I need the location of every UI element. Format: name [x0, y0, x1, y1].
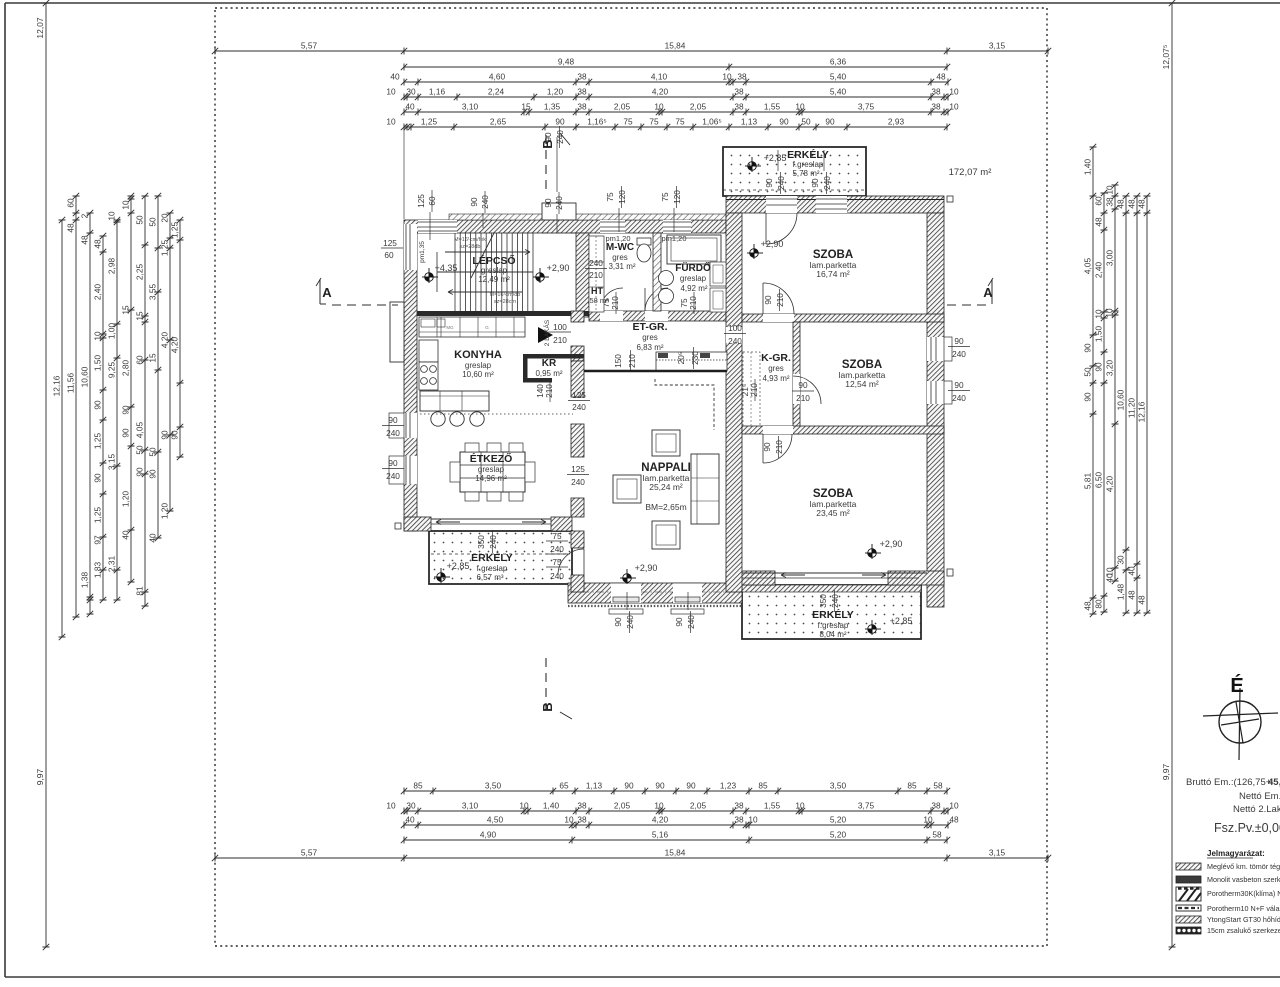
svg-text:30: 30 — [1116, 555, 1126, 565]
svg-text:90: 90 — [388, 415, 398, 425]
svg-text:Fsz.Pv.±0,00=1: Fsz.Pv.±0,00=1 — [1214, 821, 1280, 835]
svg-text:172,07 m²: 172,07 m² — [949, 167, 992, 178]
svg-text:48: 48 — [1127, 199, 1137, 209]
svg-text:50: 50 — [148, 217, 158, 227]
svg-text:75: 75 — [660, 192, 670, 202]
svg-text:3,20: 3,20 — [1105, 360, 1115, 377]
svg-text:48: 48 — [1137, 595, 1147, 605]
svg-text:40: 40 — [405, 102, 415, 112]
svg-text:15: 15 — [148, 353, 158, 363]
svg-text:1,83: 1,83 — [93, 562, 103, 579]
svg-text:10: 10 — [949, 87, 959, 97]
svg-text:240: 240 — [728, 336, 742, 346]
svg-text:15: 15 — [121, 305, 131, 315]
svg-text:90: 90 — [1083, 343, 1093, 353]
svg-text:40: 40 — [148, 533, 158, 543]
svg-text:10: 10 — [564, 815, 574, 825]
svg-text:38: 38 — [734, 87, 744, 97]
svg-text:pm1,20: pm1,20 — [661, 234, 686, 243]
svg-text:2,93: 2,93 — [888, 117, 905, 127]
svg-text:50: 50 — [135, 215, 145, 225]
svg-text:90: 90 — [810, 178, 820, 188]
svg-text:12,49 m²: 12,49 m² — [478, 275, 510, 284]
svg-text:Meglévő km. tömör tégla f: Meglévő km. tömör tégla f — [1207, 862, 1280, 871]
svg-text:38: 38 — [577, 815, 587, 825]
svg-text:1,13: 1,13 — [586, 781, 603, 791]
svg-text:10: 10 — [748, 815, 758, 825]
svg-text:Nettó 2.Lakás: Nettó 2.Lakás — [1233, 804, 1280, 815]
svg-text:1,06⁵: 1,06⁵ — [702, 117, 722, 127]
svg-text:5,81: 5,81 — [1083, 473, 1093, 490]
svg-text:75: 75 — [623, 117, 633, 127]
svg-text:4,20: 4,20 — [170, 337, 180, 354]
svg-text:240: 240 — [488, 535, 498, 549]
svg-text:f.greslap: f.greslap — [477, 564, 508, 573]
svg-text:10: 10 — [107, 211, 117, 221]
svg-text:10: 10 — [949, 801, 959, 811]
svg-text:ERKÉLY: ERKÉLY — [471, 551, 513, 564]
svg-text:G: G — [485, 325, 489, 330]
svg-text:B: B — [540, 702, 555, 711]
svg-text:2,05: 2,05 — [614, 102, 631, 112]
svg-text:125: 125 — [416, 194, 426, 208]
svg-text:20: 20 — [160, 213, 170, 223]
svg-text:10: 10 — [93, 331, 103, 341]
svg-text:A: A — [322, 285, 332, 300]
svg-text:90: 90 — [1094, 362, 1104, 372]
svg-text:210: 210 — [774, 440, 784, 454]
svg-text:90: 90 — [954, 380, 964, 390]
svg-text:1,55: 1,55 — [764, 801, 781, 811]
svg-text:1,40: 1,40 — [543, 801, 560, 811]
svg-text:1,25: 1,25 — [170, 222, 180, 239]
svg-text:90: 90 — [170, 430, 180, 440]
svg-text:4,20: 4,20 — [1105, 476, 1115, 493]
svg-text:Monolit vasbeton szerkez: Monolit vasbeton szerkez — [1207, 875, 1280, 884]
svg-text:90: 90 — [555, 117, 565, 127]
svg-text:10,60: 10,60 — [1116, 389, 1126, 410]
svg-text:100: 100 — [728, 323, 742, 333]
svg-text:240: 240 — [386, 471, 400, 481]
svg-text:23,45 m²: 23,45 m² — [816, 508, 850, 518]
svg-text:2,65: 2,65 — [490, 117, 507, 127]
svg-text:4,60: 4,60 — [489, 72, 506, 82]
svg-text:2,05: 2,05 — [614, 801, 631, 811]
svg-text:4,90: 4,90 — [480, 830, 497, 840]
svg-text:240: 240 — [822, 176, 832, 190]
svg-text:+2,90: +2,90 — [761, 239, 784, 249]
svg-text:9,25: 9,25 — [107, 362, 117, 379]
svg-text:48: 48 — [1127, 590, 1137, 600]
svg-text:48: 48 — [1083, 601, 1093, 611]
svg-text:48: 48 — [1137, 199, 1147, 209]
svg-text:+2,85: +2,85 — [764, 153, 787, 163]
svg-text:10: 10 — [722, 72, 732, 82]
svg-text:90: 90 — [798, 380, 808, 390]
svg-text:210: 210 — [749, 383, 759, 397]
svg-text:1,25: 1,25 — [93, 507, 103, 524]
svg-text:3,15: 3,15 — [989, 41, 1006, 51]
svg-text:90: 90 — [148, 469, 158, 479]
svg-text:M=16¹cm/fok: M=16¹cm/fok — [454, 237, 486, 243]
svg-text:4,92 m²: 4,92 m² — [680, 284, 707, 293]
svg-text:38: 38 — [577, 72, 587, 82]
svg-text:350: 350 — [818, 594, 828, 608]
svg-text:1,50: 1,50 — [93, 355, 103, 372]
svg-text:10: 10 — [1105, 185, 1115, 195]
svg-text:90: 90 — [764, 178, 774, 188]
svg-text:gres: gres — [612, 253, 628, 262]
svg-text:90: 90 — [779, 117, 789, 127]
svg-text:97: 97 — [93, 535, 103, 545]
svg-text:90: 90 — [762, 442, 772, 452]
svg-text:4,20: 4,20 — [652, 87, 669, 97]
svg-text:38: 38 — [577, 801, 587, 811]
svg-text:50: 50 — [135, 445, 145, 455]
svg-text:+2,85: +2,85 — [890, 616, 913, 626]
svg-text:14,96 m²: 14,96 m² — [475, 474, 507, 483]
svg-text:90: 90 — [543, 132, 553, 142]
svg-text:10: 10 — [519, 801, 529, 811]
svg-text:10: 10 — [654, 801, 664, 811]
svg-text:85: 85 — [758, 781, 768, 791]
svg-text:12,07⁵: 12,07⁵ — [1161, 45, 1171, 70]
svg-text:1,00: 1,00 — [107, 323, 117, 340]
svg-text:5,57: 5,57 — [301, 848, 318, 858]
svg-text:1,55: 1,55 — [764, 102, 781, 112]
svg-text:1,25: 1,25 — [421, 117, 438, 127]
svg-text:2,40: 2,40 — [1094, 262, 1104, 279]
svg-text:10: 10 — [795, 102, 805, 112]
svg-text:10: 10 — [923, 815, 933, 825]
svg-text:10,60: 10,60 — [80, 366, 90, 387]
svg-text:75: 75 — [552, 531, 562, 541]
svg-text:gres: gres — [768, 364, 784, 373]
svg-text:1,13: 1,13 — [741, 117, 758, 127]
svg-text:1,16⁵: 1,16⁵ — [587, 117, 607, 127]
svg-text:gres: gres — [642, 333, 658, 342]
svg-text:80: 80 — [1094, 599, 1104, 609]
svg-text:+2,90: +2,90 — [635, 563, 658, 573]
svg-text:240: 240 — [550, 571, 564, 581]
svg-text:90: 90 — [674, 617, 684, 627]
svg-text:ET-GR.: ET-GR. — [632, 321, 667, 333]
svg-text:1,25: 1,25 — [160, 240, 170, 257]
svg-text:210: 210 — [688, 296, 698, 310]
svg-text:240: 240 — [550, 544, 564, 554]
svg-text:90: 90 — [121, 428, 131, 438]
svg-text:38: 38 — [734, 801, 744, 811]
svg-text:2 LAKÁS: 2 LAKÁS — [542, 319, 551, 346]
svg-text:6,83 m²: 6,83 m² — [636, 343, 663, 352]
svg-text:2,25: 2,25 — [135, 264, 145, 281]
svg-text:3,10: 3,10 — [462, 102, 479, 112]
svg-text:1,20: 1,20 — [547, 87, 564, 97]
svg-text:85: 85 — [907, 781, 917, 791]
svg-text:65: 65 — [559, 781, 569, 791]
svg-text:Porotherm10 N+F válaszf: Porotherm10 N+F válaszf — [1207, 904, 1280, 913]
svg-text:60: 60 — [135, 355, 145, 365]
svg-text:240: 240 — [686, 615, 696, 629]
svg-text:M-WC: M-WC — [606, 242, 634, 253]
svg-text:90: 90 — [763, 295, 773, 305]
svg-text:12,16: 12,16 — [52, 375, 62, 396]
svg-text:90: 90 — [469, 197, 479, 207]
svg-text:ERKÉLY: ERKÉLY — [812, 608, 854, 621]
svg-text:240: 240 — [571, 477, 585, 487]
svg-text:38: 38 — [1105, 197, 1115, 207]
svg-text:90: 90 — [825, 117, 835, 127]
svg-text:Nettó Em.:: Nettó Em.: — [1239, 791, 1280, 802]
svg-text:3,31 m²: 3,31 m² — [608, 262, 635, 271]
svg-text:É: É — [1230, 674, 1243, 697]
svg-text:10: 10 — [121, 200, 131, 210]
svg-text:9,48: 9,48 — [558, 57, 575, 67]
svg-text:4,05: 4,05 — [1083, 258, 1093, 275]
svg-text:15: 15 — [521, 102, 531, 112]
svg-text:120: 120 — [617, 190, 627, 204]
svg-text:pm1,35: pm1,35 — [419, 241, 426, 263]
svg-text:3,10: 3,10 — [462, 801, 479, 811]
svg-text:2,31: 2,31 — [107, 556, 117, 573]
svg-text:48: 48 — [1094, 217, 1104, 227]
svg-text:HT: HT — [591, 286, 603, 296]
svg-text:90: 90 — [121, 405, 131, 415]
svg-text:1,23: 1,23 — [720, 781, 737, 791]
svg-text:ÉTKEZŐ: ÉTKEZŐ — [470, 452, 513, 465]
svg-text:2,80: 2,80 — [121, 360, 131, 377]
svg-text:90: 90 — [954, 336, 964, 346]
svg-text:40: 40 — [1105, 573, 1115, 583]
svg-text:38: 38 — [737, 72, 747, 82]
svg-text:2,98: 2,98 — [107, 258, 117, 275]
svg-text:58: 58 — [933, 781, 943, 791]
svg-text:10: 10 — [795, 801, 805, 811]
svg-text:4,20: 4,20 — [160, 332, 170, 349]
svg-text:2,05: 2,05 — [690, 102, 707, 112]
svg-text:10: 10 — [949, 102, 959, 112]
svg-text:Porotherm30K(klíma) N+F: Porotherm30K(klíma) N+F — [1207, 889, 1280, 898]
svg-text:350: 350 — [476, 535, 486, 549]
svg-text:60: 60 — [1094, 196, 1104, 206]
svg-text:sz=28db: sz=28db — [460, 244, 481, 250]
svg-text:5,16: 5,16 — [652, 830, 669, 840]
svg-text:12,54 m²: 12,54 m² — [845, 379, 879, 389]
svg-text:45,32: 45,32 — [1268, 777, 1280, 788]
svg-text:2,40: 2,40 — [93, 284, 103, 301]
svg-text:f.greslap: f.greslap — [818, 621, 849, 630]
svg-text:210: 210 — [775, 293, 785, 307]
svg-text:4,93 m²: 4,93 m² — [762, 374, 789, 383]
svg-text:125: 125 — [571, 464, 585, 474]
svg-text:M=16¹cm/db: M=16¹cm/db — [490, 292, 521, 298]
svg-text:75: 75 — [675, 117, 685, 127]
svg-text:3,50: 3,50 — [830, 781, 847, 791]
svg-text:3,15: 3,15 — [107, 454, 117, 471]
svg-text:3,55: 3,55 — [148, 284, 158, 301]
svg-text:38: 38 — [734, 815, 744, 825]
svg-text:50: 50 — [801, 117, 811, 127]
svg-text:1,20: 1,20 — [160, 503, 170, 520]
svg-text:30: 30 — [406, 87, 416, 97]
svg-text:6,50: 6,50 — [1094, 472, 1104, 489]
svg-text:,58 m²: ,58 m² — [587, 296, 609, 305]
svg-text:12,07: 12,07 — [35, 17, 45, 39]
svg-text:1,48: 1,48 — [1116, 584, 1126, 601]
svg-text:10: 10 — [386, 87, 396, 97]
svg-text:MG: MG — [446, 325, 454, 330]
svg-text:90: 90 — [160, 430, 170, 440]
svg-text:Bruttó Em.:(126,75+: Bruttó Em.:(126,75+ — [1186, 777, 1272, 788]
svg-text:+2,90: +2,90 — [547, 263, 570, 273]
svg-text:greslap: greslap — [481, 266, 508, 275]
svg-text:6,57 m³: 6,57 m³ — [476, 573, 503, 582]
svg-text:210: 210 — [796, 393, 810, 403]
svg-text:3,50: 3,50 — [485, 781, 502, 791]
svg-text:40: 40 — [390, 72, 400, 82]
svg-text:1,38: 1,38 — [80, 572, 90, 589]
svg-text:4,50: 4,50 — [487, 815, 504, 825]
svg-text:+2,85: +2,85 — [447, 561, 470, 571]
svg-text:230: 230 — [690, 351, 700, 365]
svg-text:48: 48 — [949, 815, 959, 825]
svg-text:4,20: 4,20 — [652, 815, 669, 825]
svg-text:KR: KR — [542, 358, 557, 369]
svg-text:4,05: 4,05 — [135, 422, 145, 439]
svg-text:11,20: 11,20 — [1127, 398, 1137, 419]
svg-text:210: 210 — [553, 335, 567, 345]
svg-text:48: 48 — [80, 235, 90, 245]
svg-text:38: 38 — [931, 801, 941, 811]
svg-text:K-GR.: K-GR. — [761, 352, 791, 364]
svg-text:150: 150 — [613, 354, 623, 368]
svg-text:10: 10 — [386, 801, 396, 811]
svg-text:40: 40 — [121, 530, 131, 540]
svg-text:1,40: 1,40 — [1083, 159, 1093, 176]
svg-text:3,75: 3,75 — [858, 801, 875, 811]
svg-text:60: 60 — [66, 198, 76, 208]
svg-text:0,95 m²: 0,95 m² — [535, 369, 562, 378]
svg-text:48: 48 — [93, 239, 103, 249]
svg-text:240: 240 — [625, 615, 635, 629]
svg-text:1,20: 1,20 — [121, 491, 131, 508]
svg-text:5,40: 5,40 — [830, 87, 847, 97]
svg-text:48: 48 — [936, 72, 946, 82]
svg-text:60: 60 — [384, 250, 394, 260]
svg-text:75: 75 — [552, 557, 562, 567]
svg-text:90: 90 — [135, 467, 145, 477]
svg-text:125: 125 — [572, 390, 586, 400]
svg-text:210: 210 — [610, 296, 620, 310]
svg-text:5,20: 5,20 — [830, 815, 847, 825]
svg-text:10: 10 — [386, 117, 396, 127]
svg-text:240: 240 — [830, 594, 840, 608]
svg-text:100: 100 — [553, 322, 567, 332]
svg-text:3,15: 3,15 — [989, 848, 1006, 858]
svg-text:Jelmagyarázat:: Jelmagyarázat: — [1207, 849, 1265, 858]
svg-text:greslap: greslap — [680, 274, 707, 283]
svg-text:11,56: 11,56 — [66, 373, 76, 394]
svg-text:90: 90 — [93, 473, 103, 483]
svg-text:90: 90 — [543, 198, 553, 208]
svg-text:30: 30 — [406, 801, 416, 811]
svg-text:81: 81 — [135, 586, 145, 596]
svg-text:greslap: greslap — [465, 361, 492, 370]
svg-text:90: 90 — [655, 781, 665, 791]
svg-text:YtongStart GT30 hőhídme: YtongStart GT30 hőhídme — [1207, 915, 1280, 924]
svg-text:6,36: 6,36 — [830, 57, 847, 67]
svg-text:210: 210 — [589, 270, 603, 280]
svg-text:90: 90 — [613, 617, 623, 627]
svg-text:8,04 m²: 8,04 m² — [819, 630, 846, 639]
svg-text:10: 10 — [1094, 309, 1104, 319]
svg-text:38: 38 — [577, 102, 587, 112]
svg-text:9,97: 9,97 — [35, 768, 45, 785]
svg-text:210: 210 — [627, 354, 637, 368]
svg-text:5,57: 5,57 — [301, 41, 318, 51]
svg-text:10: 10 — [1105, 308, 1115, 318]
svg-text:15,84: 15,84 — [665, 41, 686, 51]
svg-text:1,25: 1,25 — [93, 433, 103, 450]
svg-text:90: 90 — [388, 458, 398, 468]
svg-text:38: 38 — [931, 87, 941, 97]
svg-text:58: 58 — [932, 830, 942, 840]
svg-text:15,84: 15,84 — [665, 848, 686, 858]
svg-text:1,35: 1,35 — [544, 102, 561, 112]
svg-text:50: 50 — [1083, 367, 1093, 377]
svg-text:15: 15 — [135, 311, 145, 321]
svg-text:3,00: 3,00 — [1105, 250, 1115, 267]
svg-text:90: 90 — [624, 781, 634, 791]
svg-text:240: 240 — [776, 176, 786, 190]
svg-text:12,16: 12,16 — [1137, 401, 1147, 422]
svg-text:75: 75 — [649, 117, 659, 127]
svg-text:38: 38 — [577, 87, 587, 97]
svg-text:2: 2 — [80, 213, 90, 218]
svg-text:f.greslap: f.greslap — [793, 160, 824, 169]
svg-text:210: 210 — [544, 384, 554, 398]
svg-text:25,24 m²: 25,24 m² — [649, 482, 683, 492]
svg-text:125: 125 — [383, 238, 397, 248]
svg-text:240: 240 — [952, 393, 966, 403]
svg-text:BM=2,65m: BM=2,65m — [645, 502, 686, 512]
svg-text:5,20: 5,20 — [830, 830, 847, 840]
svg-text:75: 75 — [605, 192, 615, 202]
svg-text:2,24: 2,24 — [488, 87, 505, 97]
svg-text:50: 50 — [148, 447, 158, 457]
svg-text:FÜRDŐ: FÜRDŐ — [675, 261, 711, 274]
svg-text:15cm zsalukő szerkezet: 15cm zsalukő szerkezet — [1207, 926, 1280, 935]
svg-text:10: 10 — [654, 102, 664, 112]
svg-text:sz=28cm: sz=28cm — [494, 299, 517, 305]
svg-text:2,05: 2,05 — [690, 801, 707, 811]
svg-text:16,74 m²: 16,74 m² — [816, 269, 850, 279]
svg-text:KONYHA: KONYHA — [454, 349, 502, 361]
svg-text:48: 48 — [66, 223, 76, 233]
svg-text:10,60 m²: 10,60 m² — [462, 370, 494, 379]
svg-text:40: 40 — [1127, 566, 1137, 576]
svg-text:120: 120 — [672, 190, 682, 204]
svg-text:greslap: greslap — [478, 465, 505, 474]
svg-text:240: 240 — [386, 428, 400, 438]
svg-text:9,97: 9,97 — [1161, 763, 1171, 780]
svg-text:20⁵: 20⁵ — [676, 352, 686, 365]
svg-text:+4,35: +4,35 — [435, 263, 458, 273]
svg-text:48: 48 — [1116, 199, 1126, 209]
svg-text:5,40: 5,40 — [830, 72, 847, 82]
svg-text:240: 240 — [572, 402, 586, 412]
svg-text:240: 240 — [589, 258, 603, 268]
